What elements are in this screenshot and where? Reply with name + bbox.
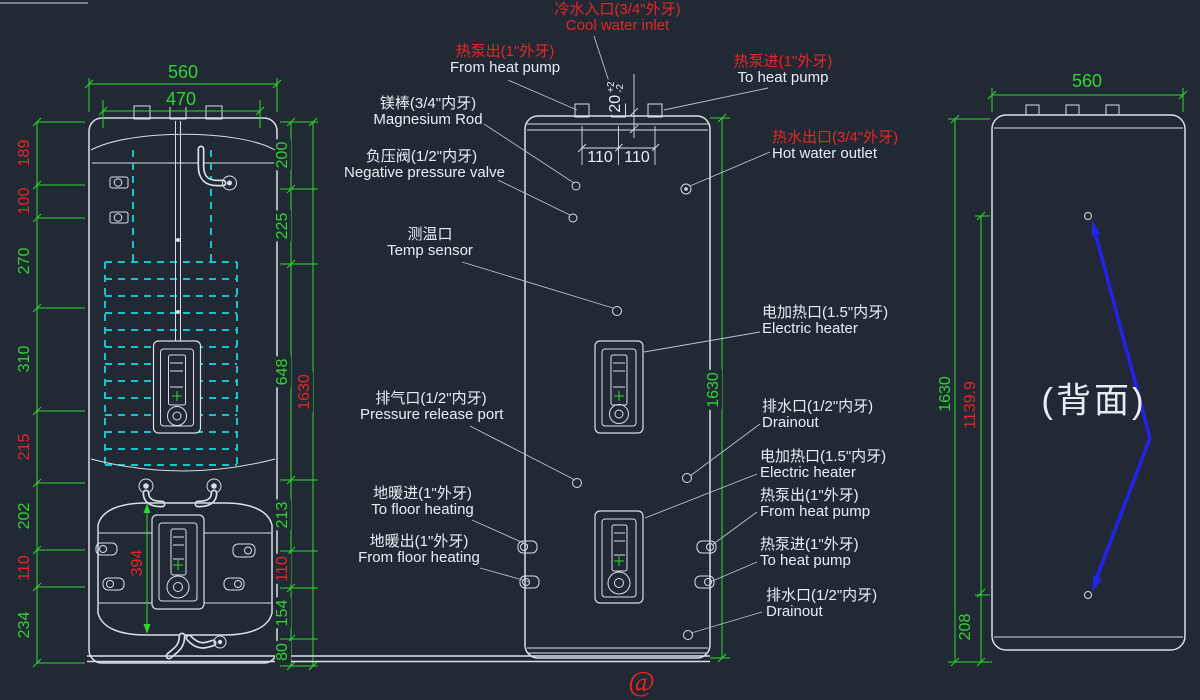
dim-100: 100	[17, 186, 33, 217]
label-hot-water-outlet: 热水出口(3/4"外牙) Hot water outlet	[772, 130, 898, 162]
label-cool-water-inlet-cn: 冷水入口(3/4"外牙)	[545, 2, 690, 18]
dim-110-mid-left: 110	[585, 150, 615, 166]
label-temp-sensor: 测温口 Temp sensor	[380, 227, 480, 259]
dim-1630-middle-view: 1630	[706, 370, 722, 410]
label-drainout-1-en: Drainout	[762, 415, 873, 431]
label-electric-heater-1-cn: 电加热口(1.5"内牙)	[762, 305, 888, 321]
dim-1139-9: 1139.9	[963, 379, 979, 431]
dim-1630-right-view: 1630	[938, 374, 954, 414]
dim-200: 200	[275, 140, 291, 171]
label-heat-pump-in-side: 热泵进(1"外牙) To heat pump	[760, 537, 859, 569]
label-floor-heating-out-en: From floor heating	[358, 550, 480, 566]
outlet-elbow-pipe	[201, 149, 237, 190]
dim-225: 225	[275, 211, 291, 242]
label-floor-heating-in-en: To floor heating	[365, 502, 480, 518]
dim-189: 189	[17, 138, 33, 169]
dim-234: 234	[17, 610, 33, 641]
label-heat-pump-in-side-en: To heat pump	[760, 553, 859, 569]
label-electric-heater-2: 电加热口(1.5"内牙) Electric heater	[760, 449, 886, 481]
label-negative-pressure-valve: 负压阀(1/2"内牙) Negative pressure valve	[344, 149, 499, 181]
cad-drawing-page: 560 470 189 100 270 310 215 202 110 234 …	[0, 0, 1200, 700]
dim-213: 213	[275, 500, 291, 531]
label-drainout-1: 排水口(1/2"内牙) Drainout	[762, 399, 873, 431]
label-pressure-release-port: 排气口(1/2"内牙) Pressure release port	[360, 391, 502, 423]
heater-flange-upper	[154, 341, 201, 433]
left-dim-column	[33, 118, 85, 667]
label-heat-pump-out-side: 热泵出(1"外牙) From heat pump	[760, 488, 870, 520]
label-heat-pump-out-top-cn: 热泵出(1"外牙)	[450, 44, 560, 60]
label-hot-water-outlet-en: Hot water outlet	[772, 146, 898, 162]
rear-view-caption: (背面)	[1041, 373, 1146, 424]
dim-648: 648	[275, 357, 291, 388]
dim-270: 270	[17, 246, 33, 277]
dim-20-tol-minus: -2	[616, 81, 625, 92]
anode-rod	[176, 121, 181, 341]
label-heat-pump-out-side-cn: 热泵出(1"外牙)	[760, 488, 870, 504]
label-electric-heater-1-en: Electric heater	[762, 321, 888, 337]
label-drainout-2: 排水口(1/2"内牙) Drainout	[766, 588, 877, 620]
label-floor-heating-in: 地暖进(1"外牙) To floor heating	[365, 486, 480, 518]
label-heat-pump-in-side-cn: 热泵进(1"外牙)	[760, 537, 859, 553]
electric-heater-flange-1	[595, 341, 643, 433]
dim-110-right: 110	[275, 554, 291, 584]
label-heat-pump-in-top: 热泵进(1"外牙) To heat pump	[733, 54, 833, 86]
heater-flange-lower	[152, 515, 204, 609]
label-hot-water-outlet-cn: 热水出口(3/4"外牙)	[772, 130, 898, 146]
side-ports	[110, 177, 128, 223]
dim-202: 202	[17, 501, 33, 532]
label-drainout-1-cn: 排水口(1/2"内牙)	[762, 399, 873, 415]
middle-view-tank-front	[462, 36, 770, 662]
dim-80: 80	[275, 641, 291, 663]
label-heat-pump-in-top-en: To heat pump	[733, 70, 833, 86]
dim-110-mid-right: 110	[622, 150, 652, 166]
connecting-pipes	[139, 479, 221, 504]
label-electric-heater-2-en: Electric heater	[760, 465, 886, 481]
dim-20-nominal: 20	[607, 95, 624, 113]
label-pressure-release-port-cn: 排气口(1/2"内牙)	[360, 391, 502, 407]
label-drainout-2-en: Drainout	[766, 604, 877, 620]
label-floor-heating-in-cn: 地暖进(1"外牙)	[365, 486, 480, 502]
label-heat-pump-out-side-en: From heat pump	[760, 504, 870, 520]
label-cool-water-inlet: 冷水入口(3/4"外牙) Cool water inlet	[545, 2, 690, 34]
bottom-pipes	[169, 636, 226, 656]
dim-215: 215	[17, 432, 33, 463]
label-drainout-2-cn: 排水口(1/2"内牙)	[766, 588, 877, 604]
label-electric-heater-2-cn: 电加热口(1.5"内牙)	[760, 449, 886, 465]
label-temp-sensor-cn: 测温口	[380, 227, 480, 243]
dim-1630-left-view: 1630	[297, 372, 313, 412]
label-heat-pump-in-top-cn: 热泵进(1"外牙)	[733, 54, 833, 70]
dim-20-line	[630, 74, 638, 138]
watermark-at-symbol: @	[628, 666, 655, 699]
label-floor-heating-out: 地暖出(1"外牙) From floor heating	[358, 534, 480, 566]
label-pressure-release-port-en: Pressure release port	[360, 407, 502, 423]
dim-left-width-outer: 560	[166, 64, 200, 80]
label-magnesium-rod-en: Magnesium Rod	[368, 112, 488, 128]
label-negative-pressure-valve-en: Negative pressure valve	[344, 165, 499, 181]
dim-394: 394	[130, 548, 146, 579]
label-floor-heating-out-cn: 地暖出(1"外牙)	[358, 534, 480, 550]
label-heat-pump-out-top: 热泵出(1"外牙) From heat pump	[450, 44, 560, 76]
dim-nozzle-height-20: 20+2-2	[607, 79, 625, 114]
label-temp-sensor-en: Temp sensor	[380, 243, 480, 259]
dim-right-width: 560	[1070, 73, 1104, 89]
label-heat-pump-out-top-en: From heat pump	[450, 60, 560, 76]
label-cool-water-inlet-en: Cool water inlet	[545, 18, 690, 34]
label-electric-heater-1: 电加热口(1.5"内牙) Electric heater	[762, 305, 888, 337]
dim-310: 310	[17, 344, 33, 375]
dim-154: 154	[275, 598, 291, 629]
label-magnesium-rod: 镁棒(3/4"内牙) Magnesium Rod	[368, 96, 488, 128]
electric-heater-flange-2	[595, 511, 643, 603]
dim-left-width-inner: 470	[164, 91, 198, 107]
label-magnesium-rod-cn: 镁棒(3/4"内牙)	[368, 96, 488, 112]
dim-110-left: 110	[17, 553, 33, 583]
label-negative-pressure-valve-cn: 负压阀(1/2"内牙)	[344, 149, 499, 165]
dim-208: 208	[958, 612, 974, 643]
